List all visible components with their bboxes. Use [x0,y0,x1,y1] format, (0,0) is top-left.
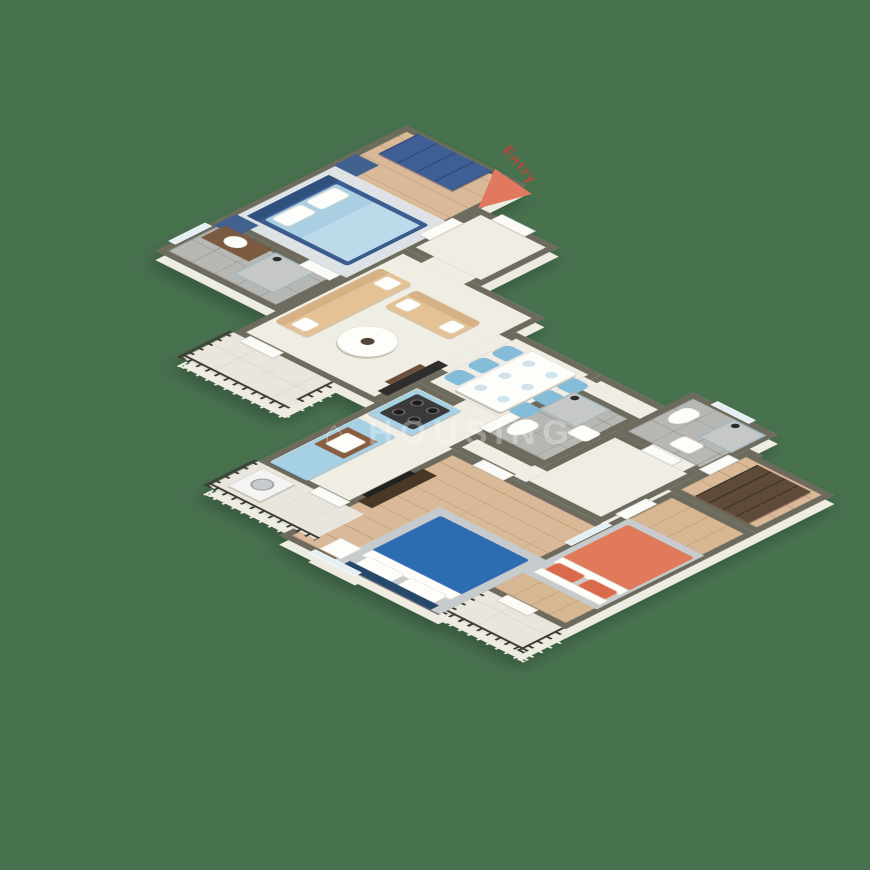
floor-plan-scene: Entry ⌂ HOUSING [0,0,870,870]
isometric-stage [0,60,870,668]
entry-indicator: Entry [468,146,568,216]
